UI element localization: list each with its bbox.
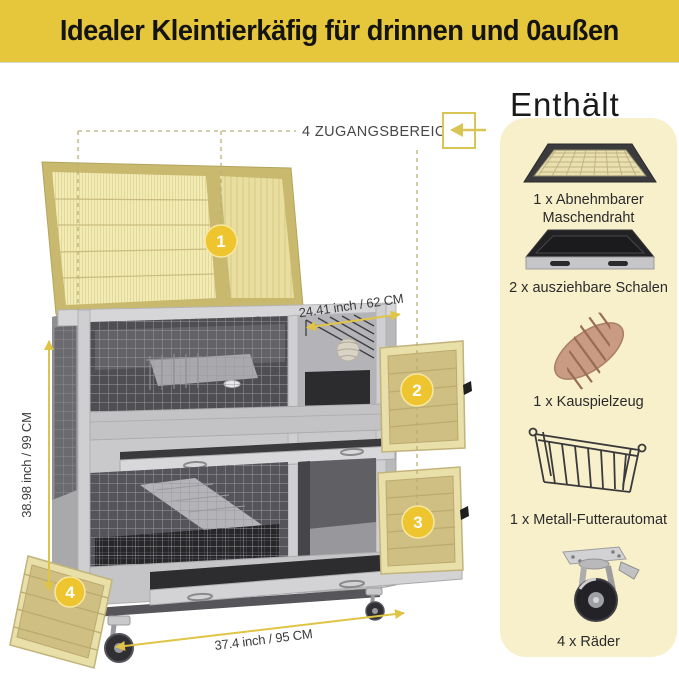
include-item-label: 1 x Metall-Futterautomat [508, 512, 669, 530]
svg-text:3: 3 [413, 513, 422, 532]
include-item: 1 x Kauspielzeug [500, 310, 677, 392]
access-arrow-box [443, 113, 486, 148]
svg-text:4: 4 [65, 583, 75, 602]
include-item-label: 2 x ausziehbare Schalen [508, 280, 669, 298]
include-item: 1 x Abnehmbarer Maschendraht [500, 134, 677, 192]
caster-left [105, 616, 133, 662]
include-item-label: 1 x Kauspielzeug [508, 394, 669, 412]
svg-text:2: 2 [412, 381, 421, 400]
svg-text:1: 1 [216, 232, 225, 251]
chew-toy-icon [534, 310, 644, 392]
marker-4: 4 [55, 577, 85, 607]
marker-3: 3 [402, 506, 434, 538]
include-item: 4 x Räder [500, 542, 677, 630]
dim-bottom: 37.4 inch / 95 CM [116, 613, 404, 653]
metal-feeder-icon [519, 424, 659, 508]
dim-left-label: 38.98 inch / 99 CM [19, 412, 34, 518]
includes-panel: 1 x Abnehmbarer Maschendraht 2 x auszieh… [500, 118, 677, 657]
include-item: 1 x Metall-Futterautomat [500, 424, 677, 508]
open-lid [42, 162, 305, 321]
dim-left: 38.98 inch / 99 CM [19, 341, 49, 591]
upper-run [90, 316, 288, 422]
marker-1: 1 [205, 225, 237, 257]
banner-title: Idealer Kleintierkäfig für drinnen und 0… [60, 15, 619, 48]
caster-wheel-icon [533, 542, 645, 630]
product-illustration: 4 ZUGANGSBEREICHE 24.41 inch / 62 CM 38.… [0, 60, 510, 674]
slide-out-tray-icon [514, 224, 664, 276]
top-banner: Idealer Kleintierkäfig für drinnen und 0… [0, 0, 679, 63]
marker-2: 2 [401, 374, 433, 406]
mesh-tray-icon [514, 134, 664, 192]
include-item-label: 4 x Räder [508, 634, 669, 652]
product-infographic: Idealer Kleintierkäfig für drinnen und 0… [0, 0, 679, 674]
include-item-label: 1 x Abnehmbarer Maschendraht [508, 192, 669, 227]
include-item: 2 x ausziehbare Schalen [500, 224, 677, 276]
